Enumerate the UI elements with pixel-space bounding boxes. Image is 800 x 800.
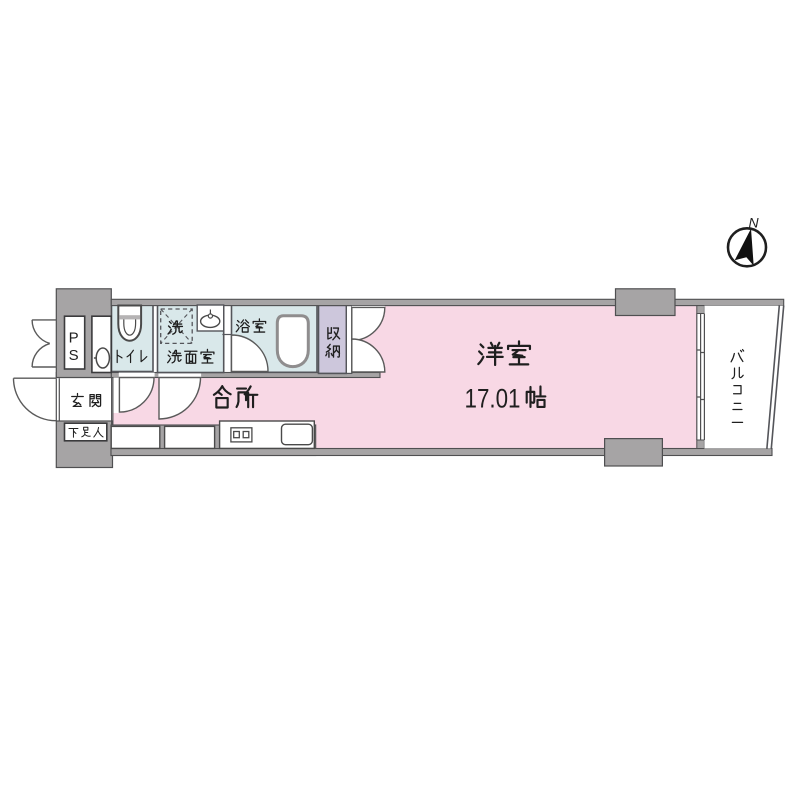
svg-text:P: P xyxy=(69,330,79,347)
svg-text:S: S xyxy=(69,347,79,364)
svg-text:17.01: 17.01 xyxy=(465,384,521,414)
svg-text:N: N xyxy=(748,215,759,231)
